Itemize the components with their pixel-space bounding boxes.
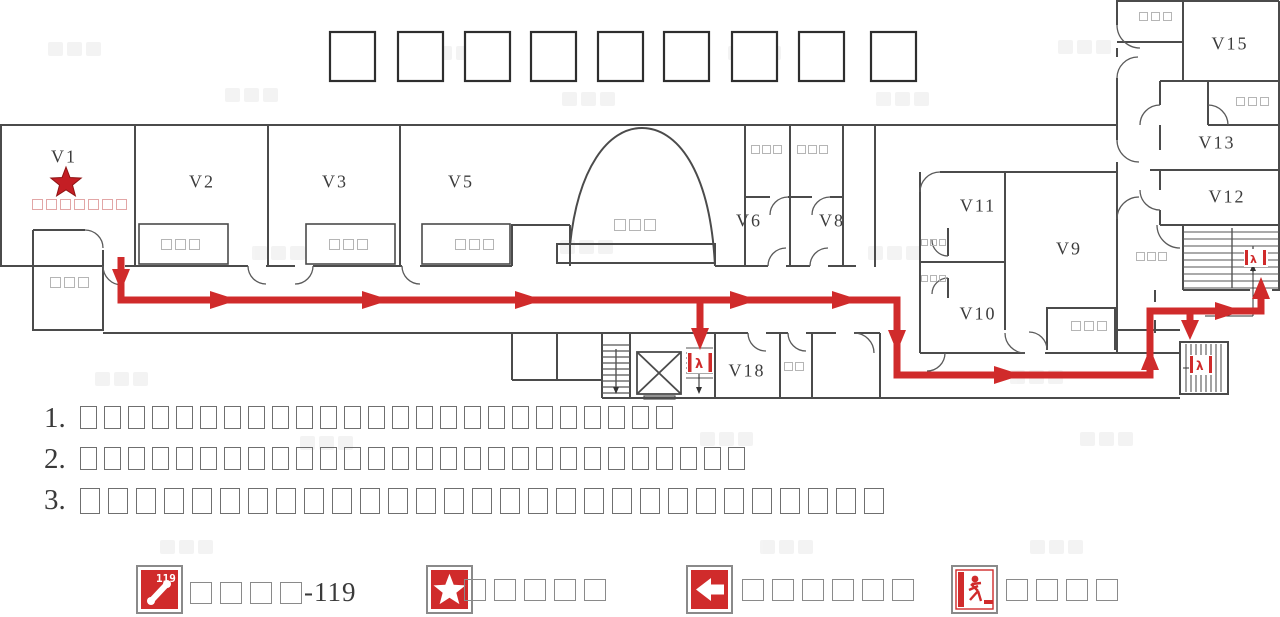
stairs-mid: [602, 345, 630, 393]
stairs-wing: [1183, 228, 1279, 316]
exit-sign-mid: λ: [687, 352, 713, 373]
v1-sign-boxes: [32, 199, 127, 210]
room-label-v11: V11: [960, 196, 996, 217]
v5-table-boxes: [455, 239, 494, 250]
svg-text:119: 119: [156, 572, 176, 585]
room-label-v5: V5: [448, 172, 474, 193]
room-label-v1: V1: [51, 147, 77, 168]
v18-right-boxes: [784, 362, 804, 371]
room-label-v6: V6: [736, 211, 762, 232]
entrance-room-boxes: [50, 277, 89, 288]
room-label-v10: V10: [960, 304, 997, 325]
room-label-v8: V8: [819, 211, 845, 232]
legend-direction-label: [742, 579, 916, 601]
note-number: 2.: [44, 445, 66, 474]
v3-table-boxes: [329, 239, 368, 250]
legend-fire-phone-label: -119: [190, 579, 357, 606]
v13-room-boxes: [1236, 97, 1269, 106]
legend-phone-number: -119: [304, 579, 357, 606]
note-line-2: 2.: [44, 445, 745, 474]
elevator: [637, 352, 681, 399]
note-redacted-text: [80, 447, 745, 470]
safety-exit-icon: [952, 566, 997, 613]
svg-text:λ: λ: [1250, 253, 1257, 266]
room-label-v12: V12: [1209, 187, 1246, 208]
door-arcs: [85, 25, 1228, 371]
legend-location-label: [464, 579, 608, 601]
exit-sign-bottom-right: λ: [1189, 355, 1215, 375]
note-line-1: 1.: [44, 404, 673, 433]
room-label-v3: V3: [322, 172, 348, 193]
floor-plan-svg: λ λ λ: [0, 0, 1280, 617]
exit-sign-wing: λ: [1244, 249, 1268, 267]
note-line-3: 3.: [44, 486, 884, 515]
lobby-arch: [570, 128, 715, 266]
lobby-boxes: [614, 219, 656, 231]
v8-closet-boxes: [797, 145, 828, 154]
v10-side-boxes: [921, 275, 946, 282]
room-label-v9: V9: [1056, 239, 1082, 260]
evacuation-direction-icon: [687, 566, 732, 613]
legend-redacted-text: [190, 582, 302, 604]
top-skylight-squares: [330, 32, 916, 81]
svg-text:λ: λ: [1196, 359, 1204, 373]
room-label-v13: V13: [1199, 133, 1236, 154]
wing-corridor-boxes: [1136, 252, 1167, 261]
v11-side-boxes: [921, 239, 946, 246]
legend-redacted-text: [1006, 579, 1118, 601]
location-star: [51, 167, 81, 196]
legend-redacted-text: [464, 579, 606, 601]
room-label-v18: V18: [729, 361, 766, 382]
v2-table-boxes: [161, 239, 200, 250]
note-number: 1.: [44, 404, 66, 433]
v9-closet-boxes: [1071, 321, 1107, 331]
legend-exit-label: [1006, 579, 1120, 601]
room-label-v2: V2: [189, 172, 215, 193]
wing-top-room-boxes: [1139, 12, 1172, 21]
evacuation-floor-plan: λ λ λ: [0, 0, 1280, 617]
note-redacted-text: [80, 406, 673, 429]
svg-text:λ: λ: [695, 357, 703, 372]
lobby-desk: [557, 244, 715, 263]
stairs-exit-mid-arrow: [696, 387, 702, 394]
legend-redacted-text: [742, 579, 914, 601]
note-redacted-text: [80, 488, 884, 514]
fire-phone-icon: 119: [137, 566, 182, 613]
note-number: 3.: [44, 486, 66, 515]
room-label-v15: V15: [1212, 34, 1249, 55]
v6-closet-boxes: [751, 145, 782, 154]
